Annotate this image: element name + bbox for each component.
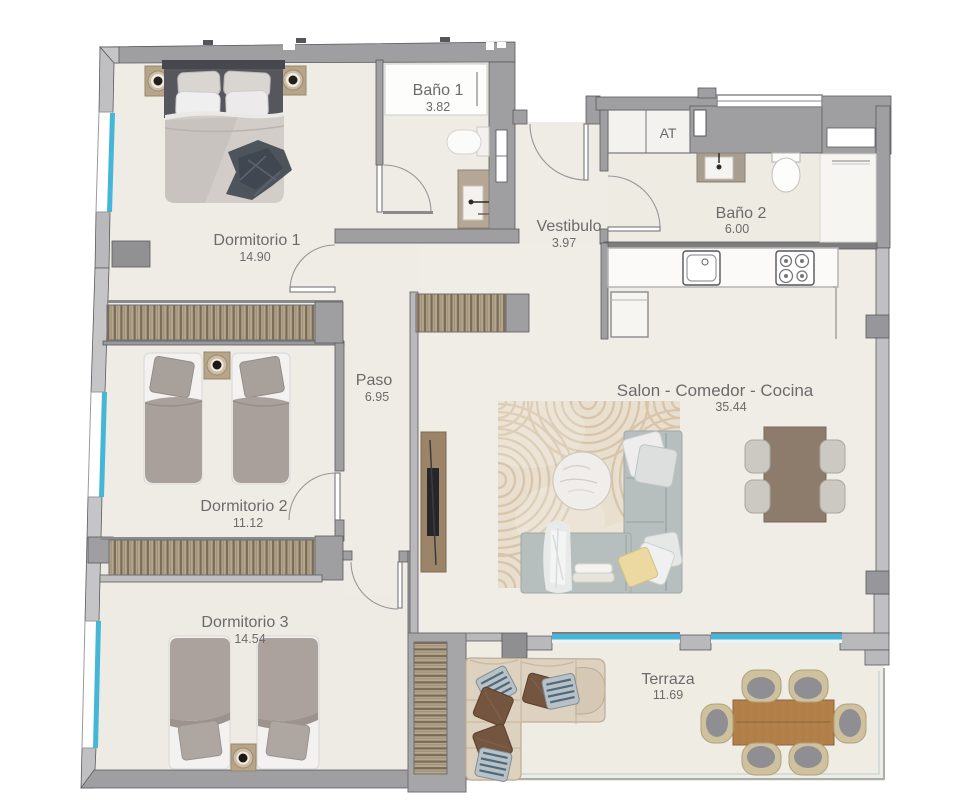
svg-text:Paso: Paso (356, 372, 393, 389)
svg-text:Terraza: Terraza (641, 671, 694, 688)
svg-text:6.00: 6.00 (725, 222, 749, 236)
svg-text:14.54: 14.54 (234, 632, 265, 646)
svg-text:Baño 1: Baño 1 (413, 82, 464, 99)
svg-text:Baño 2: Baño 2 (716, 205, 767, 222)
svg-text:AT: AT (660, 125, 677, 141)
svg-text:3.97: 3.97 (552, 236, 576, 250)
svg-text:Dormitorio 2: Dormitorio 2 (200, 498, 287, 515)
svg-text:11.12: 11.12 (233, 516, 263, 530)
svg-text:14.90: 14.90 (239, 250, 270, 264)
svg-text:Dormitorio 3: Dormitorio 3 (201, 614, 288, 631)
svg-text:Vestibulo: Vestibulo (537, 218, 602, 235)
svg-text:Salon - Comedor - Cocina: Salon - Comedor - Cocina (617, 381, 814, 400)
svg-text:3.82: 3.82 (426, 100, 450, 114)
svg-text:6.95: 6.95 (365, 390, 389, 404)
svg-text:11.69: 11.69 (653, 688, 683, 702)
svg-text:35.44: 35.44 (715, 400, 746, 414)
svg-text:Dormitorio 1: Dormitorio 1 (213, 232, 300, 249)
